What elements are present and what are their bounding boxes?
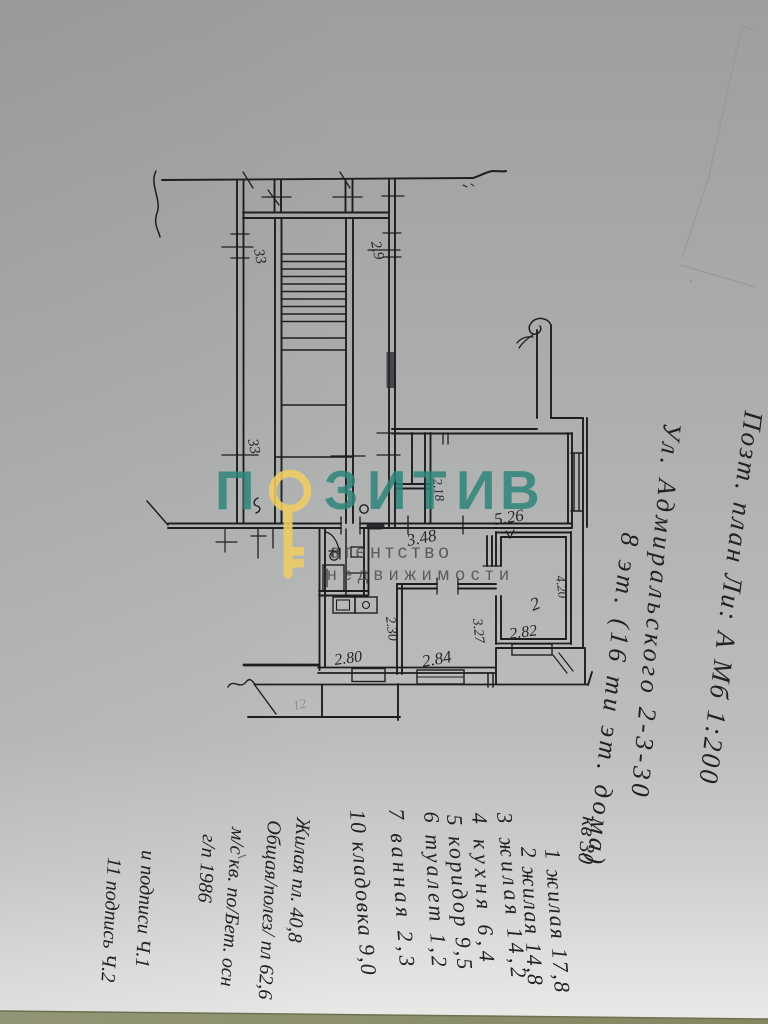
svg-text:недвижимости: недвижимости: [327, 564, 515, 584]
svg-text:Т: Т: [413, 459, 447, 521]
svg-text:33: 33: [250, 247, 269, 266]
svg-text:агентство: агентство: [330, 542, 453, 563]
svg-text:33: 33: [244, 437, 263, 456]
svg-text:И: И: [456, 459, 496, 521]
svg-text:З: З: [324, 459, 358, 521]
svg-text:И: И: [367, 459, 407, 521]
svg-text:2.30: 2.30: [382, 616, 400, 642]
svg-text:кв 30: кв 30: [573, 815, 603, 865]
svg-text:4.20: 4.20: [553, 575, 571, 600]
svg-text:3.27: 3.27: [469, 617, 487, 645]
svg-text:В: В: [500, 459, 540, 521]
svg-text:П: П: [215, 459, 255, 521]
